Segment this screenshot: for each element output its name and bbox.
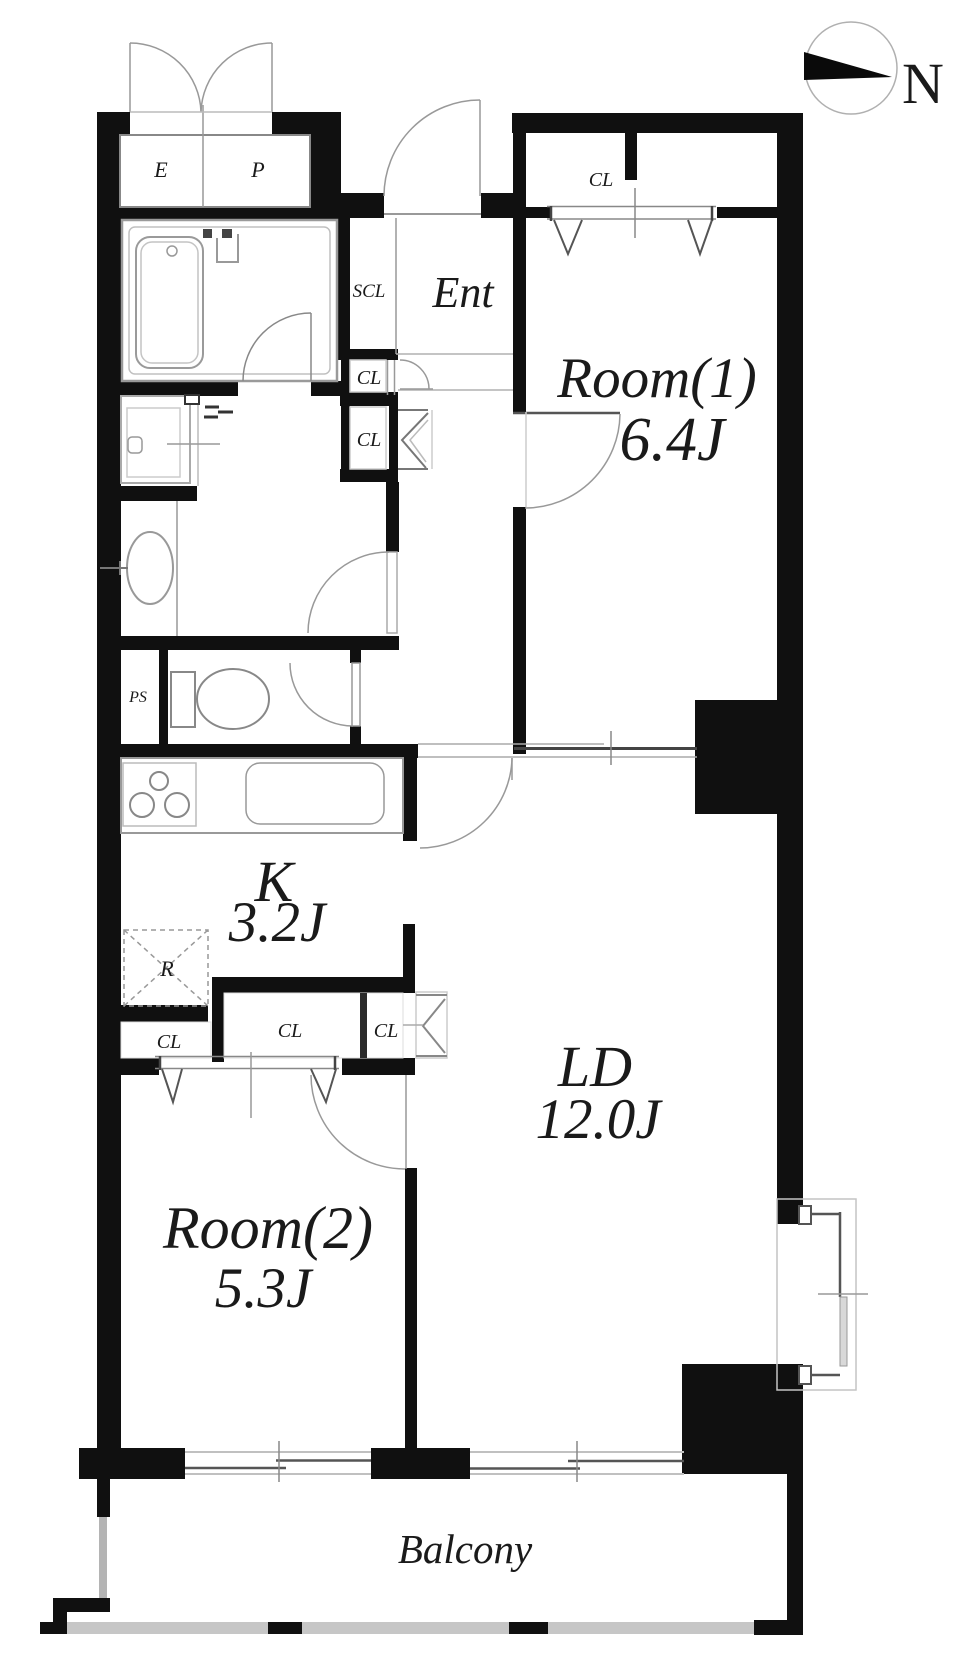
svg-text:N: N — [902, 51, 944, 116]
svg-text:Room(2): Room(2) — [162, 1195, 373, 1261]
svg-text:CL: CL — [589, 169, 613, 191]
svg-text:CL: CL — [357, 429, 381, 451]
svg-text:Ent: Ent — [431, 268, 495, 317]
svg-text:SCL: SCL — [353, 281, 386, 302]
svg-text:3.2J: 3.2J — [228, 891, 328, 954]
svg-text:CL: CL — [374, 1020, 398, 1042]
svg-text:CL: CL — [357, 367, 381, 389]
svg-text:E: E — [153, 157, 168, 182]
svg-text:5.3J: 5.3J — [215, 1257, 314, 1320]
svg-text:PS: PS — [128, 689, 147, 706]
svg-text:Room(1): Room(1) — [556, 347, 756, 410]
svg-text:Balcony: Balcony — [398, 1526, 533, 1572]
svg-text:P: P — [250, 157, 264, 182]
svg-text:12.0J: 12.0J — [535, 1088, 663, 1151]
svg-text:R: R — [159, 956, 174, 981]
svg-text:CL: CL — [278, 1020, 302, 1042]
svg-text:6.4J: 6.4J — [619, 406, 727, 474]
svg-text:CL: CL — [157, 1031, 181, 1053]
